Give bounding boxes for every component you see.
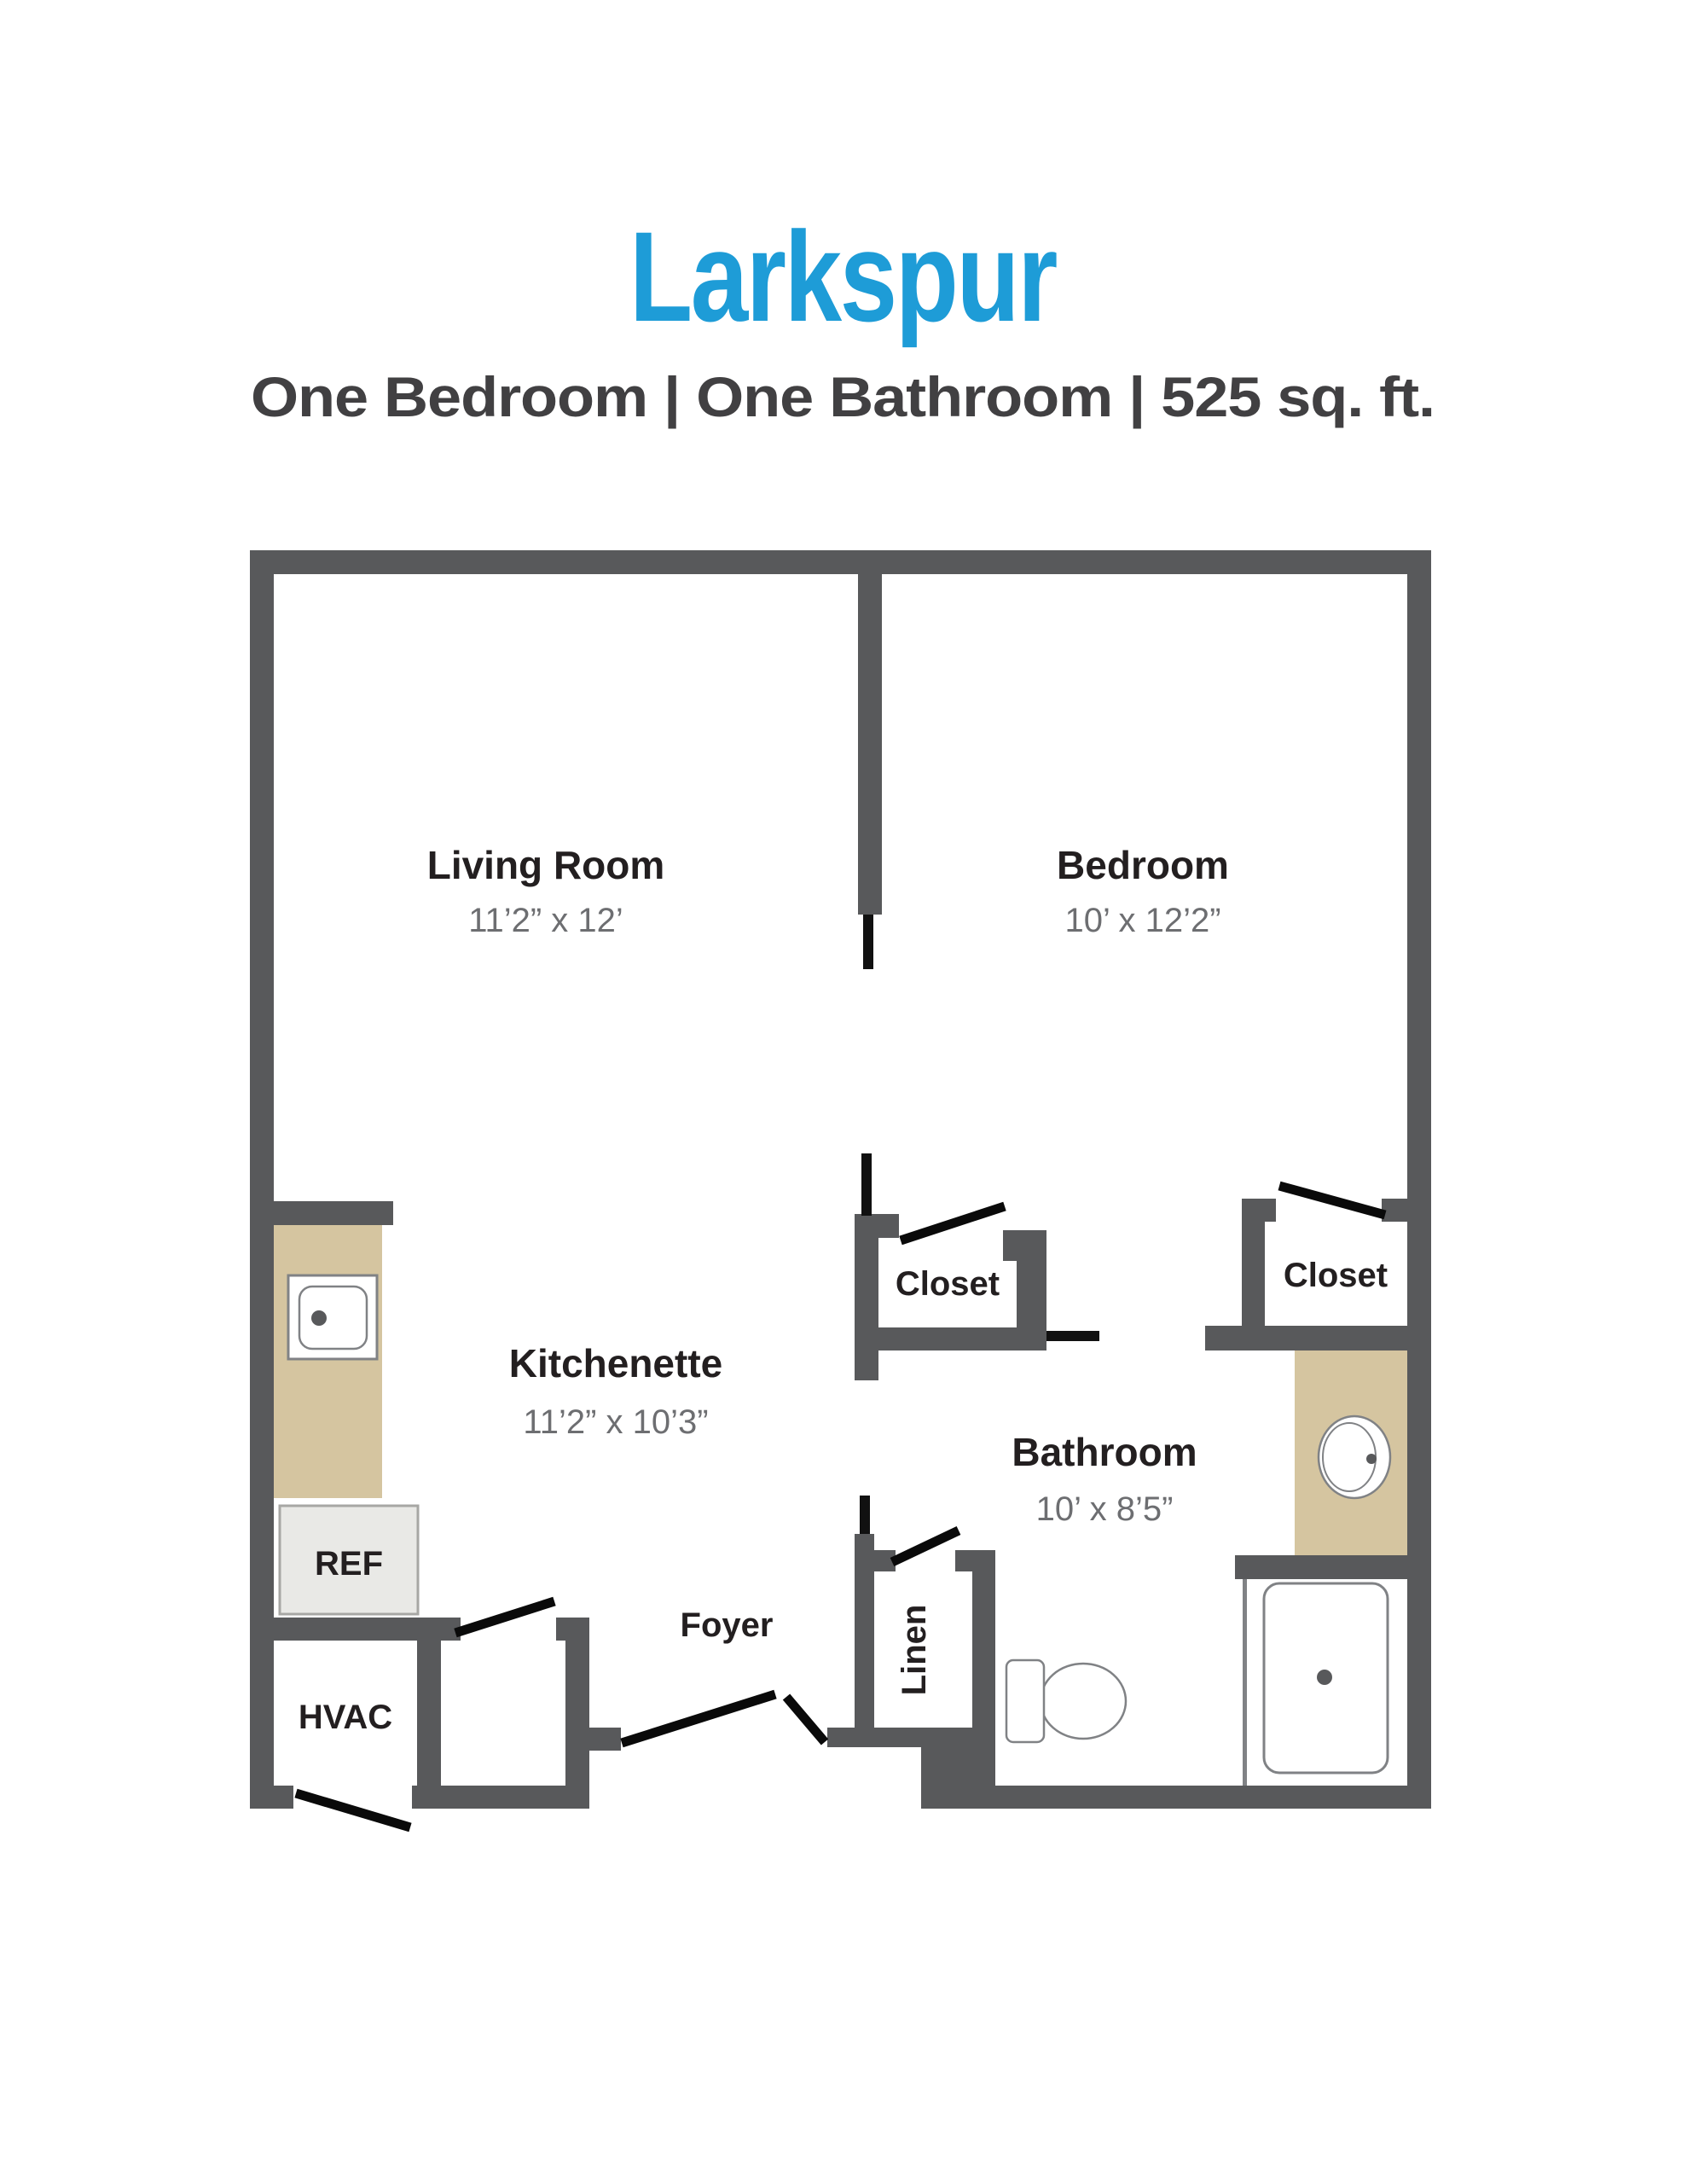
kitchenette-dims: 11’2” x 10’3” [523,1403,708,1441]
wall-entry-jamb [589,1728,621,1751]
toilet-bowl-icon [1041,1664,1126,1739]
wall-linen-left [855,1534,874,1747]
toilet-tank-icon [1006,1660,1044,1742]
bedroom-closet-label: Closet [1284,1257,1388,1294]
walls [250,550,1431,1809]
bedroom-label: Bedroom [1057,843,1229,887]
page-subtitle: One Bedroom | One Bathroom | 525 sq. ft. [251,365,1435,430]
refrigerator-label: REF [315,1545,383,1583]
wall-bedroom-closet-tr-jamb [1382,1199,1431,1222]
foyer-label: Foyer [681,1606,774,1644]
kitchen-counter [274,1225,382,1498]
wall-bedroom-closet-tl-jamb [1242,1199,1276,1222]
wall-living-bedroom-divider [858,574,882,915]
hall-closet-door [901,1206,1005,1240]
wall-foyer-closet-right [565,1641,589,1786]
bathroom-label: Bathroom [1012,1430,1197,1474]
kitchen-sink-basin [299,1287,367,1349]
entry-door-right-leaf [786,1697,825,1742]
wall-linen-step [921,1747,995,1809]
bathroom-dims: 10’ x 8’5” [1036,1490,1174,1528]
wall-vanity-shower-divider [1235,1555,1431,1579]
hvac-door [296,1793,410,1827]
bedroom-entry-marker-top [863,915,873,969]
room-labels: Living Room 11’2” x 12’ Bedroom 10’ x 12… [299,843,1388,1736]
wall-kitchen-foyer [250,1618,461,1641]
shower-glass-edge [1243,1579,1247,1786]
wall-kitchen-stub [274,1201,393,1225]
floor-plan: Larkspur One Bedroom | One Bathroom | 52… [0,0,1687,2184]
wall-right [1407,550,1431,1809]
wall-foyer-closet-jamb [556,1618,589,1641]
bedroom-entry-marker-bottom [861,1153,872,1216]
linen-label: Linen [896,1605,933,1696]
foyer-closet-door [455,1601,554,1633]
hvac-label: HVAC [299,1699,392,1736]
kitchenette-label: Kitchenette [509,1341,722,1385]
wall-linen-right [972,1550,995,1747]
bathroom-opening-marker [1046,1331,1099,1341]
hall-closet-label: Closet [896,1265,1000,1303]
bathroom-door [892,1531,959,1562]
wall-hall-closet-right [1017,1230,1046,1327]
wall-hvac-closet-divider [417,1641,441,1786]
wall-bottom-left-corner [250,1786,293,1809]
wall-bottom-right [994,1786,1431,1809]
shower-drain [1317,1670,1332,1685]
bathroom-door-marker [860,1496,870,1534]
wall-bottom-under-closet [412,1786,589,1809]
entry-door-left-leaf [622,1694,775,1743]
wall-top [250,550,1431,574]
bedroom-dims: 10’ x 12’2” [1064,902,1220,939]
header: Larkspur One Bedroom | One Bathroom | 52… [251,205,1435,430]
living-room-dims: 11’2” x 12’ [468,902,623,939]
living-room-label: Living Room [427,843,665,887]
vanity-sink-drain [1366,1454,1377,1464]
wall-linen-bottom [827,1728,995,1747]
wall-hall-closet-tl-jamb [855,1214,899,1238]
wall-hall-closet-left [855,1214,878,1380]
page-title: Larkspur [629,205,1057,348]
wall-bedroom-closet-bottom [1205,1326,1431,1350]
bedroom-closet-door [1279,1186,1385,1215]
wall-hall-closet-bottom [855,1327,1046,1350]
kitchen-sink-drain [311,1310,327,1326]
fixtures [274,1225,1407,1786]
